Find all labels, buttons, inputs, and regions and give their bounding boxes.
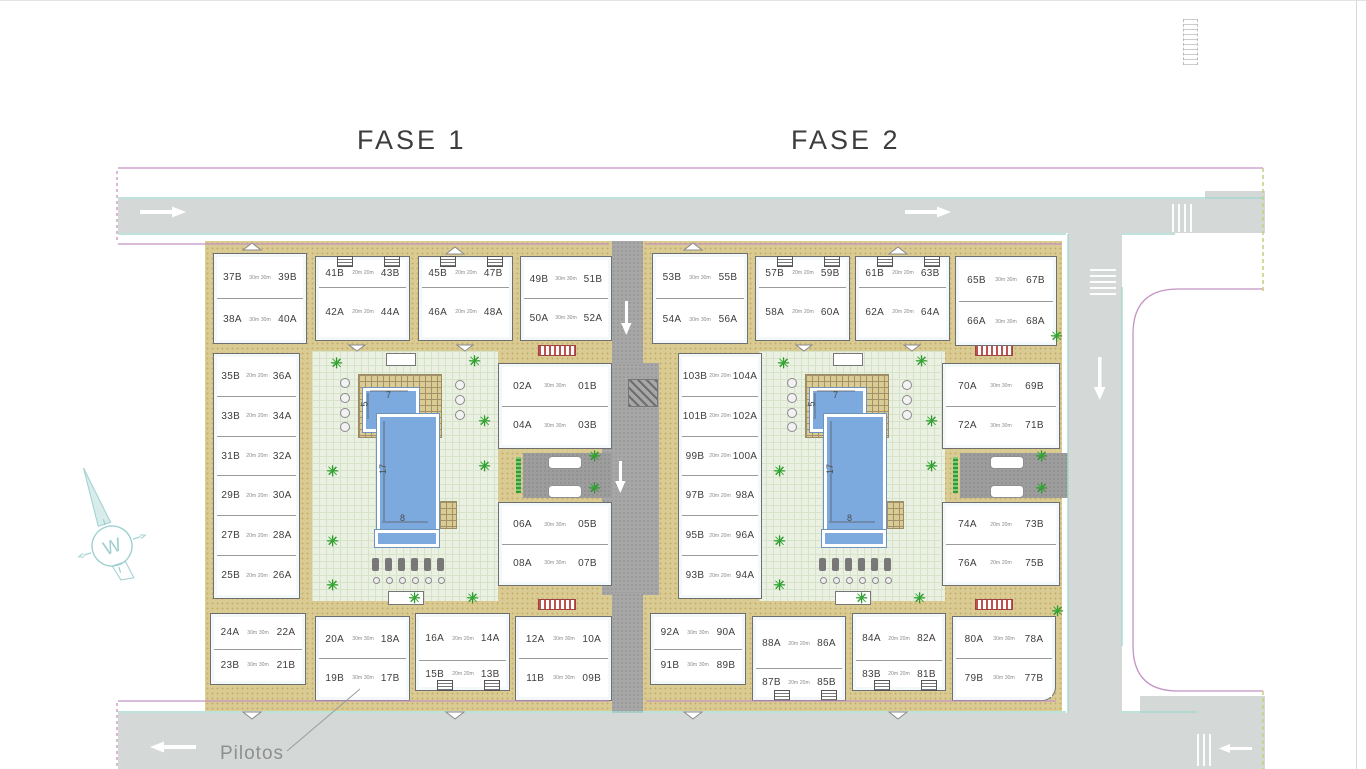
stair-strip [538, 345, 576, 356]
unit-area-label: 20m [709, 573, 719, 578]
unit-area-label: 20m [452, 672, 462, 677]
table-icon [340, 422, 350, 432]
unit-label: 35B [217, 371, 245, 382]
pilotos-label: Pilotos [220, 743, 284, 765]
building-block-f1-b20: 20A30m30m18A19B30m30m17B [315, 616, 410, 701]
utility-mark [1183, 19, 1198, 65]
table-icon [340, 378, 350, 388]
unit-area-label: 30m [556, 423, 566, 428]
unit-area-label: 30m [556, 561, 566, 566]
building-block-f2-right-top: 70A30m30m69B72A30m30m71B [942, 363, 1060, 449]
table-icon [787, 422, 797, 432]
unit-area-labels: 30m30m [996, 319, 1016, 324]
stool-icon [885, 577, 892, 584]
unit-area-label: 30m [544, 384, 554, 389]
unit-label: 58A [759, 307, 791, 318]
unit-label: 74A [946, 519, 989, 530]
unit-area-labels: 30m30m [545, 384, 565, 389]
unit-area-label: 20m [903, 271, 913, 276]
unit-area-label: 30m [990, 384, 1000, 389]
unit-area-label: 30m [261, 275, 271, 280]
unit-area-label: 30m [1007, 278, 1017, 283]
unit-label: 48A [478, 307, 510, 318]
unit-label: 28A [269, 530, 297, 541]
building-block-f1-b41: 41B20m20m43B42A20m20m44A [315, 256, 410, 341]
unit-area-label: 20m [792, 310, 802, 315]
sun-lounger-icon [884, 558, 891, 571]
unit-area-labels: 30m30m [690, 317, 710, 322]
unit-area-label: 20m [800, 680, 810, 685]
car-icon [548, 485, 582, 498]
unit-label: 102A [732, 411, 758, 422]
unit-label: 29B [217, 490, 245, 501]
unit-area-labels: 20m20m [889, 636, 909, 641]
unit-area-label: 20m [455, 271, 465, 276]
unit-area-label: 30m [247, 630, 257, 635]
unit-label: 16A [419, 633, 451, 644]
stool-icon [833, 577, 840, 584]
unit-area-label: 30m [553, 636, 563, 641]
sun-lounger-icon [372, 558, 379, 571]
unit-label: 07B [567, 558, 608, 569]
unit-label: 67B [1018, 275, 1053, 286]
unit-area-label: 30m [1005, 675, 1015, 680]
unit-area-labels: 20m20m [246, 454, 266, 459]
fase1-pool-bench [375, 530, 439, 547]
unit-area-label: 20m [788, 641, 798, 646]
palm-tree-icon: ✳ [588, 481, 601, 496]
stair-strip [538, 599, 576, 610]
unit-area-labels: 20m20m [352, 310, 372, 315]
unit-area-label: 30m [990, 423, 1000, 428]
unit-area-label: 30m [567, 315, 577, 320]
unit-label: 85B [811, 677, 842, 688]
unit-area-labels: 20m20m [455, 271, 475, 276]
unit-area-label: 20m [1002, 522, 1012, 527]
unit-label: 43B [375, 268, 407, 279]
car-icon [548, 456, 582, 469]
unit-area-label: 30m [689, 275, 699, 280]
unit-area-label: 30m [701, 317, 711, 322]
unit-label: 49B [524, 274, 554, 285]
unit-area-label: 30m [993, 636, 1003, 641]
unit-area-label: 30m [544, 522, 554, 527]
unit-area-label: 30m [699, 663, 709, 668]
stool-icon [438, 577, 445, 584]
unit-area-labels: 30m30m [991, 423, 1011, 428]
unit-area-labels: 20m20m [710, 493, 730, 498]
stool-icon [820, 577, 827, 584]
palm-tree-icon: ✳ [915, 354, 928, 369]
unit-label: 104A [732, 371, 758, 382]
page-edge-line [1356, 1, 1357, 769]
unit-area-label: 20m [721, 414, 731, 419]
building-block-f1-left: 35B20m20m36A33B20m20m34A31B20m20m32A29B2… [213, 353, 300, 599]
building-block-f2-b61: 61B20m20m63B62A20m20m64A [855, 256, 950, 341]
unit-area-label: 30m [553, 675, 563, 680]
unit-label: 56A [712, 314, 744, 325]
pool-dim-label: 5 [360, 401, 370, 406]
unit-label: 20A [319, 634, 351, 645]
svg-text:W: W [101, 535, 125, 561]
unit-label: 50A [524, 313, 554, 324]
table-icon [787, 408, 797, 418]
unit-area-label: 20m [452, 636, 462, 641]
unit-area-label: 20m [463, 636, 473, 641]
unit-area-labels: 30m30m [556, 276, 576, 281]
unit-area-labels: 20m20m [792, 310, 812, 315]
building-block-f1-b45: 45B20m20m47B46A20m20m48A [418, 256, 513, 341]
unit-label: 46A [422, 307, 454, 318]
bottom-road [118, 713, 1265, 769]
stairs-icon [774, 690, 790, 701]
unit-area-label: 20m [246, 493, 256, 498]
stool-icon [399, 577, 406, 584]
unit-area-labels: 30m30m [352, 675, 372, 680]
unit-label: 60A [815, 307, 847, 318]
building-block-f2-b57: 57B20m20m59B58A20m20m60A [755, 256, 850, 341]
unit-area-label: 20m [788, 680, 798, 685]
unit-label: 69B [1013, 381, 1056, 392]
unit-label: 10A [576, 634, 609, 645]
stool-icon [412, 577, 419, 584]
unit-label: 93B [682, 570, 708, 581]
unit-label: 06A [502, 519, 543, 530]
unit-label: 27B [217, 530, 245, 541]
stair-strip [975, 345, 1013, 356]
unit-area-labels: 30m30m [556, 315, 576, 320]
pool-dim-label: 17 [378, 464, 388, 474]
sun-lounger-icon [845, 558, 852, 571]
unit-area-labels: 20m20m [352, 271, 372, 276]
unit-label: 44A [375, 307, 407, 318]
palm-tree-icon: ✳ [330, 356, 343, 371]
unit-label: 22A [270, 627, 302, 638]
stairs-icon [824, 256, 840, 267]
unit-area-label: 20m [888, 672, 898, 677]
unit-area-label: 20m [246, 414, 256, 419]
sun-lounger-icon [398, 558, 405, 571]
unit-label: 59B [815, 268, 847, 279]
stool-icon [373, 577, 380, 584]
palm-tree-icon: ✳ [326, 578, 339, 593]
building-block-f2-b88: 88A20m20m86A87B20m20m85B [752, 616, 846, 701]
unit-area-labels: 30m30m [994, 636, 1014, 641]
stairs-icon [440, 256, 456, 267]
unit-label: 19B [319, 673, 351, 684]
crosswalk [1197, 734, 1215, 766]
unit-label: 11B [519, 673, 552, 684]
stairs-icon [874, 680, 890, 691]
unit-label: 24A [214, 627, 246, 638]
unit-label: 34A [269, 411, 297, 422]
palm-tree-icon: ✳ [777, 356, 790, 371]
unit-area-label: 20m [803, 271, 813, 276]
unit-label: 04A [502, 420, 543, 431]
unit-label: 30A [269, 490, 297, 501]
pool-dim-label: 7 [833, 390, 838, 400]
unit-label: 41B [319, 268, 351, 279]
unit-area-label: 30m [687, 630, 697, 635]
fase2-pool-bench [822, 530, 886, 547]
unit-label: 97B [682, 490, 708, 501]
unit-area-labels: 30m30m [250, 317, 270, 322]
unit-area-labels: 30m30m [996, 278, 1016, 283]
palm-tree-icon: ✳ [588, 449, 601, 464]
central-road-north [612, 241, 643, 365]
car-icon [990, 485, 1024, 498]
unit-area-label: 30m [544, 423, 554, 428]
unit-area-labels: 20m20m [246, 374, 266, 379]
unit-area-label: 20m [257, 493, 267, 498]
unit-area-labels: 20m20m [452, 636, 472, 641]
palm-tree-icon: ✳ [478, 459, 491, 474]
palm-tree-icon: ✳ [1035, 449, 1048, 464]
north-compass-icon: W [60, 461, 170, 586]
top-road-step [1205, 191, 1265, 201]
unit-area-label: 20m [352, 310, 362, 315]
unit-area-label: 30m [363, 636, 373, 641]
unit-label: 75B [1013, 558, 1056, 569]
pool-dim-label: 8 [400, 513, 405, 523]
unit-area-label: 20m [709, 493, 719, 498]
unit-area-label: 30m [564, 636, 574, 641]
sun-lounger-icon [819, 558, 826, 571]
right-road [1068, 233, 1122, 713]
building-block-f1-mid-bot: 06A30m30m05B08A30m30m07B [498, 502, 612, 586]
unit-label: 94A [732, 570, 758, 581]
unit-area-label: 30m [261, 317, 271, 322]
stairs-icon [384, 256, 400, 267]
unit-label: 65B [959, 275, 994, 286]
stool-icon [386, 577, 393, 584]
building-block-f1-b24: 24A30m30m22A23B30m30m21B [210, 613, 306, 685]
unit-area-label: 30m [544, 561, 554, 566]
unit-label: 39B [272, 272, 303, 283]
stairs-icon [484, 680, 500, 691]
building-block-f1-b12: 12A30m30m10A11B30m30m09B [515, 616, 612, 701]
palm-tree-icon: ✳ [1035, 481, 1048, 496]
unit-area-label: 20m [466, 271, 476, 276]
unit-area-label: 20m [900, 636, 910, 641]
unit-area-labels: 30m30m [994, 675, 1014, 680]
unit-area-label: 20m [466, 310, 476, 315]
unit-label: 87B [756, 677, 787, 688]
unit-area-label: 30m [555, 315, 565, 320]
stool-icon [425, 577, 432, 584]
unit-label: 71B [1013, 420, 1056, 431]
stairs-icon [437, 680, 453, 691]
pool-dim-label: 17 [825, 464, 835, 474]
unit-area-labels: 30m30m [545, 561, 565, 566]
unit-area-label: 20m [721, 454, 731, 459]
unit-label: 05B [567, 519, 608, 530]
unit-label: 99B [682, 451, 708, 462]
unit-label: 101B [682, 411, 708, 422]
unit-area-label: 20m [800, 641, 810, 646]
unit-label: 103B [682, 371, 708, 382]
unit-label: 15B [419, 669, 451, 680]
crosswalk [1172, 204, 1194, 232]
unit-label: 62A [859, 307, 891, 318]
unit-area-label: 20m [721, 573, 731, 578]
unit-area-label: 20m [990, 522, 1000, 527]
unit-label: 40A [272, 314, 303, 325]
unit-label: 47B [478, 268, 510, 279]
fase1-title: FASE 1 [357, 125, 467, 156]
bottom-road-step [1140, 696, 1265, 714]
unit-label: 100A [732, 451, 758, 462]
unit-label: 18A [375, 634, 407, 645]
unit-area-label: 30m [1005, 636, 1015, 641]
unit-area-label: 20m [803, 310, 813, 315]
unit-area-label: 30m [564, 675, 574, 680]
unit-label: 66A [959, 316, 994, 327]
unit-area-labels: 30m30m [248, 630, 268, 635]
unit-area-label: 30m [995, 278, 1005, 283]
table-icon [455, 395, 465, 405]
unit-area-labels: 30m30m [352, 636, 372, 641]
palm-tree-icon: ✳ [855, 591, 868, 606]
unit-area-labels: 30m30m [553, 636, 573, 641]
unit-label: 26A [269, 570, 297, 581]
crosswalk [1090, 267, 1116, 295]
unit-area-labels: 20m20m [455, 310, 475, 315]
unit-area-labels: 20m20m [892, 310, 912, 315]
stairs-icon [921, 680, 937, 691]
stairs-icon [821, 690, 837, 701]
unit-label: 09B [576, 673, 609, 684]
unit-area-label: 30m [995, 319, 1005, 324]
unit-area-label: 30m [352, 675, 362, 680]
unit-label: 89B [710, 660, 742, 671]
unit-label: 13B [475, 669, 507, 680]
unit-area-labels: 20m20m [991, 522, 1011, 527]
unit-area-label: 30m [259, 630, 269, 635]
sun-lounger-icon [385, 558, 392, 571]
unit-area-labels: 30m30m [690, 275, 710, 280]
palm-tree-icon: ✳ [925, 414, 938, 429]
unit-label: 08A [502, 558, 543, 569]
building-block-f2-b84: 84A20m20m82A83B20m20m81B [852, 613, 946, 691]
table-icon [455, 380, 465, 390]
unit-label: 54A [656, 314, 688, 325]
unit-area-labels: 20m20m [246, 414, 266, 419]
unit-area-label: 30m [556, 522, 566, 527]
unit-label: 31B [217, 451, 245, 462]
palm-tree-icon: ✳ [1051, 604, 1064, 619]
unit-label: 98A [732, 490, 758, 501]
unit-area-labels: 20m20m [246, 573, 266, 578]
unit-label: 17B [375, 673, 407, 684]
unit-area-label: 20m [257, 573, 267, 578]
stool-icon [846, 577, 853, 584]
unit-area-label: 30m [249, 275, 259, 280]
unit-area-label: 30m [352, 636, 362, 641]
sun-lounger-icon [437, 558, 444, 571]
unit-area-labels: 20m20m [452, 672, 472, 677]
table-icon [787, 378, 797, 388]
building-block-f1-b16: 16A20m20m14A15B20m20m13B [415, 613, 510, 691]
table-icon [340, 408, 350, 418]
unit-area-label: 20m [709, 454, 719, 459]
palm-tree-icon: ✳ [466, 591, 479, 606]
table-icon [340, 393, 350, 403]
unit-area-label: 20m [721, 533, 731, 538]
unit-area-labels: 30m30m [545, 423, 565, 428]
unit-area-label: 20m [1002, 561, 1012, 566]
unit-label: 90A [710, 627, 742, 638]
unit-label: 79B [956, 673, 992, 684]
unit-area-label: 30m [556, 384, 566, 389]
unit-label: 95B [682, 530, 708, 541]
unit-label: 25B [217, 570, 245, 581]
unit-area-labels: 20m20m [991, 561, 1011, 566]
unit-area-label: 20m [892, 310, 902, 315]
unit-label: 68A [1018, 316, 1053, 327]
unit-area-labels: 30m30m [688, 630, 708, 635]
building-block-f1-mid-top: 02A30m30m01B04A30m30m03B [498, 363, 612, 449]
unit-label: 88A [756, 638, 787, 649]
building-block-f2-b53: 53B30m30m55B54A30m30m56A [652, 253, 748, 344]
unit-label: 53B [656, 272, 688, 283]
unit-area-label: 30m [687, 663, 697, 668]
unit-area-labels: 20m20m [889, 672, 909, 677]
unit-area-labels: 30m30m [688, 663, 708, 668]
palm-tree-icon: ✳ [408, 591, 421, 606]
unit-area-label: 20m [892, 271, 902, 276]
unit-area-labels: 20m20m [710, 414, 730, 419]
sun-lounger-icon [871, 558, 878, 571]
building-block-f1-b37: 37B30m30m39B38A30m30m40A [213, 253, 307, 344]
unit-label: 57B [759, 268, 791, 279]
sun-lounger-icon [424, 558, 431, 571]
top-road [118, 199, 1265, 233]
hedge-icon [516, 457, 521, 493]
unit-area-labels: 20m20m [710, 573, 730, 578]
unit-label: 36A [269, 371, 297, 382]
unit-label: 32A [269, 451, 297, 462]
unit-area-label: 30m [699, 630, 709, 635]
unit-label: 23B [214, 660, 246, 671]
stairs-icon [337, 256, 353, 267]
unit-area-label: 20m [257, 374, 267, 379]
unit-area-label: 20m [721, 493, 731, 498]
palm-tree-icon: ✳ [326, 534, 339, 549]
unit-label: 01B [567, 381, 608, 392]
unit-label: 84A [856, 633, 887, 644]
unit-area-label: 20m [903, 310, 913, 315]
unit-area-label: 20m [246, 533, 256, 538]
unit-label: 77B [1016, 673, 1052, 684]
unit-area-labels: 30m30m [553, 675, 573, 680]
unit-label: 91B [654, 660, 686, 671]
stool-icon [872, 577, 879, 584]
unit-area-label: 30m [259, 663, 269, 668]
unit-label: 51B [578, 274, 608, 285]
unit-area-label: 30m [701, 275, 711, 280]
building-block-f2-b92: 92A30m30m90A91B30m30m89B [650, 613, 746, 685]
unit-area-label: 20m [888, 636, 898, 641]
bench-icon [386, 353, 416, 366]
unit-label: 73B [1013, 519, 1056, 530]
site-plan-canvas: FASE 1 FASE 2 5 7 17 8 5 7 17 8 [0, 0, 1366, 769]
unit-label: 82A [911, 633, 942, 644]
unit-label: 70A [946, 381, 989, 392]
unit-label: 38A [217, 314, 248, 325]
sun-lounger-icon [411, 558, 418, 571]
unit-area-labels: 30m30m [250, 275, 270, 280]
